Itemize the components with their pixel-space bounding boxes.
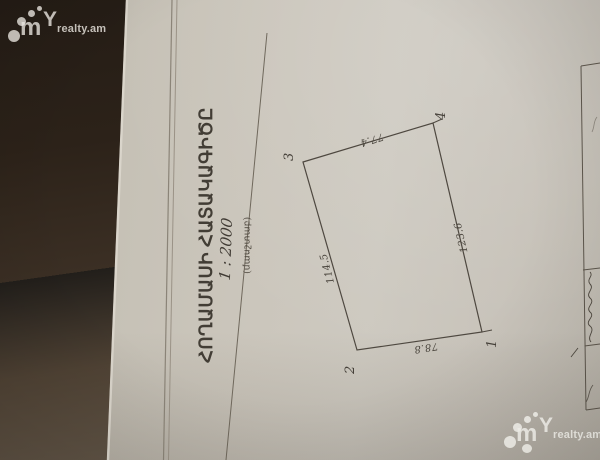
myrealty-watermark-top-left: m Y realty.am xyxy=(8,6,108,52)
logo-wordmark: realty.am xyxy=(553,429,600,441)
handwritten-mark-lower xyxy=(586,385,593,402)
logo-dot-icon xyxy=(8,30,20,42)
handwritten-tick xyxy=(571,348,578,357)
logo-letter-m: m xyxy=(20,14,41,42)
side-table-top-border xyxy=(581,63,600,66)
scale-value-handwritten: 1 : 2000 xyxy=(216,216,236,283)
scale-caption: (մասշտաբ) xyxy=(242,218,253,274)
logo-dot-icon xyxy=(504,436,516,448)
photo-of-land-plan-document: ՀՈՂԱՄԱՍԻ ՀԱՏԱԿԱԳԻԾԸ 1 : 2000 (մասշտաբ) 1… xyxy=(0,0,600,460)
logo-letter-y-figure: Y xyxy=(43,8,57,32)
logo-letter-y-figure: Y xyxy=(539,414,553,438)
vertex-label-4: 4 xyxy=(435,106,449,120)
logo-wordmark: realty.am xyxy=(57,23,106,35)
side-table-divider-1 xyxy=(583,268,600,270)
document-title: ՀՈՂԱՄԱՍԻ ՀԱՏԱԿԱԳԻԾԸ xyxy=(196,133,218,363)
page-fold-line xyxy=(164,0,173,460)
corner-tick-1 xyxy=(482,330,492,332)
page-fold-line-2 xyxy=(169,0,178,460)
side-table-divider-2 xyxy=(585,344,600,346)
logo-letter-m: m xyxy=(516,420,537,448)
vertex-label-2: 2 xyxy=(344,360,358,374)
vertex-label-3: 3 xyxy=(283,147,297,161)
handwritten-mark-upper xyxy=(592,117,597,132)
myrealty-watermark-bottom-right: m Y realty.am xyxy=(504,412,600,458)
logo-dot-icon xyxy=(37,6,42,11)
vertex-label-1: 1 xyxy=(486,334,500,348)
handwritten-entry xyxy=(588,272,592,342)
logo-dot-icon xyxy=(533,412,538,417)
side-table-left-border xyxy=(581,66,586,410)
side-table-bottom-border xyxy=(586,408,600,410)
paper-edge-highlight xyxy=(108,0,127,460)
document-line-art xyxy=(0,0,600,460)
